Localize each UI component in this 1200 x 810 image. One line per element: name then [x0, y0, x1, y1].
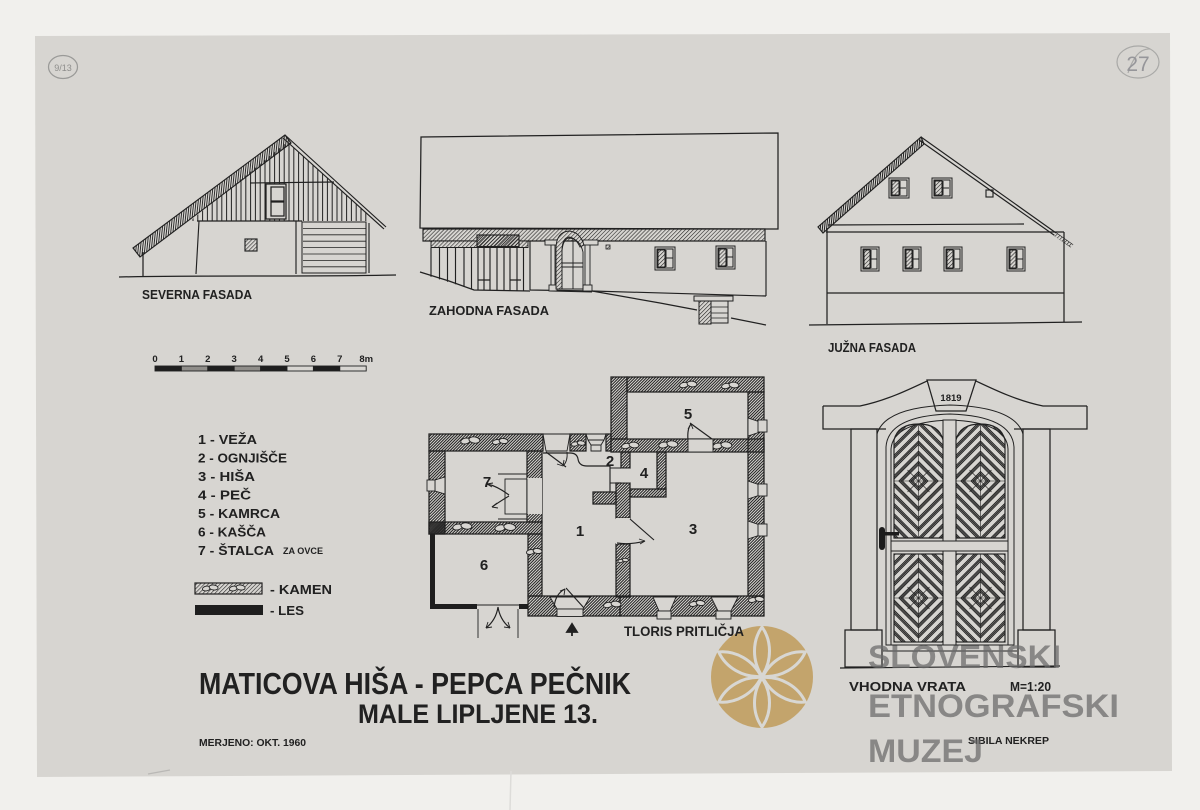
- svg-text:3: 3: [232, 354, 237, 365]
- svg-text:TLORIS PRITLIČJA: TLORIS PRITLIČJA: [624, 624, 744, 639]
- svg-text:3 - HIŠA: 3 - HIŠA: [198, 469, 255, 484]
- svg-text:9/13: 9/13: [54, 63, 72, 73]
- svg-text:SEVERNA FASADA: SEVERNA FASADA: [142, 287, 253, 302]
- svg-text:4: 4: [640, 465, 649, 482]
- svg-text:5: 5: [284, 354, 290, 365]
- svg-text:6: 6: [311, 354, 316, 365]
- svg-text:MALE LIPLJENE 13.: MALE LIPLJENE 13.: [358, 699, 598, 729]
- svg-text:7 - ŠTALCA: 7 - ŠTALCA: [198, 543, 274, 558]
- svg-text:JUŽNA FASADA: JUŽNA FASADA: [828, 340, 917, 355]
- svg-text:6 - KAŠČA: 6 - KAŠČA: [198, 525, 266, 540]
- svg-text:- KAMEN: - KAMEN: [270, 582, 332, 597]
- svg-text:5 - KAMRCA: 5 - KAMRCA: [198, 507, 280, 521]
- svg-text:5: 5: [684, 406, 692, 423]
- svg-text:4: 4: [258, 354, 264, 365]
- svg-text:4 - PEČ: 4 - PEČ: [198, 488, 251, 503]
- svg-text:7: 7: [337, 354, 342, 365]
- svg-text:1 - VEŽA: 1 - VEŽA: [198, 432, 257, 447]
- svg-text:1: 1: [179, 354, 185, 365]
- svg-text:8m: 8m: [359, 354, 373, 365]
- svg-text:2 - OGNJIŠČE: 2 - OGNJIŠČE: [198, 451, 287, 466]
- svg-text:MUZEJ: MUZEJ: [868, 733, 983, 769]
- svg-text:2: 2: [606, 453, 614, 470]
- svg-text:2: 2: [205, 354, 210, 365]
- svg-text:ZA OVCE: ZA OVCE: [283, 546, 323, 557]
- svg-text:ZAHODNA FASADA: ZAHODNA FASADA: [429, 303, 550, 318]
- svg-text:0: 0: [152, 354, 157, 365]
- svg-text:- LES: - LES: [270, 603, 304, 618]
- svg-text:27: 27: [1126, 53, 1149, 76]
- svg-text:MERJENO: OKT. 1960: MERJENO: OKT. 1960: [199, 737, 306, 749]
- svg-text:7: 7: [483, 474, 491, 491]
- svg-text:6: 6: [480, 557, 488, 574]
- svg-text:MATICOVA HIŠA - PEPCA PEČNIK: MATICOVA HIŠA - PEPCA PEČNIK: [199, 665, 632, 701]
- svg-text:1: 1: [576, 523, 584, 540]
- svg-text:3: 3: [689, 521, 697, 538]
- svg-text:SLOVENSKI: SLOVENSKI: [868, 639, 1061, 675]
- svg-text:ETNOGRAFSKI: ETNOGRAFSKI: [868, 688, 1119, 724]
- svg-text:1819: 1819: [940, 393, 961, 404]
